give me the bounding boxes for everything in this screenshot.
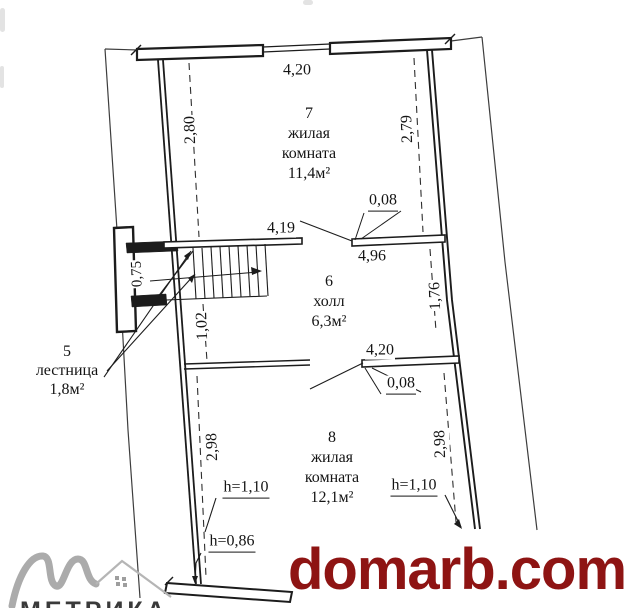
logo-house-window	[115, 576, 127, 587]
height-callout-right: h=1,10	[390, 478, 437, 497]
room-8-area: 12,1м²	[305, 488, 359, 508]
dim-wall-thickness-top: 0,08	[368, 193, 398, 212]
room-7-name: жилая	[282, 124, 336, 144]
dim-niche: 0,75	[130, 260, 147, 289]
watermark-text: domarb.com	[288, 541, 626, 599]
room-6-label: 6 холл 6,3м²	[312, 272, 347, 332]
room-6-number: 6	[312, 272, 347, 292]
room-5-area: 1,8м²	[36, 380, 98, 399]
dim-hall-right: 1,76	[427, 281, 445, 312]
height-callout-left: h=1,10	[222, 480, 269, 499]
door-leaf-room7	[300, 221, 352, 241]
room-7-number: 7	[282, 104, 336, 124]
room-6-area: 6,3м²	[312, 312, 347, 332]
room-8-label: 8 жилая комната 12,1м²	[305, 428, 359, 508]
dim-top-width: 4,20	[282, 63, 312, 80]
room-5-name: лестница	[36, 361, 98, 380]
dim-room8-left: 2,98	[204, 432, 222, 463]
bottom-wall	[165, 577, 292, 602]
room-7-area: 11,4м²	[282, 164, 336, 184]
floor-plan-page: 4,20 2,80 2,79 0,08 4,19 4,96 1,76 0,75 …	[0, 0, 630, 608]
dim-hall-width: 4,96	[357, 249, 387, 266]
logo-caption-text: МЕТРИКА	[20, 599, 169, 608]
top-window	[263, 44, 330, 52]
room-6-name: холл	[312, 292, 347, 312]
room-8-name: жилая	[305, 448, 359, 468]
partition-hall-room8	[184, 356, 459, 394]
top-wall	[131, 34, 455, 60]
logo-house-roof	[96, 561, 171, 597]
door-leaf-room8	[310, 363, 363, 389]
room-5-number: 5	[36, 342, 98, 361]
dim-stair-side: 1,02	[194, 311, 212, 342]
room-5-label: 5 лестница 1,8м²	[36, 342, 98, 399]
dim-room8-door-wall: 4,20	[365, 343, 395, 360]
room-8-name2: комната	[305, 468, 359, 488]
dim-room7-left: 2,80	[182, 115, 200, 146]
dim-room8-right: 2,98	[432, 429, 450, 460]
room-8-number: 8	[305, 428, 359, 448]
height-callout-bottom: h=0,86	[208, 534, 255, 553]
room-7-name2: комната	[282, 144, 336, 164]
dim-room7-right: 2,79	[399, 114, 417, 145]
room-7-label: 7 жилая комната 11,4м²	[282, 104, 336, 184]
dim-wall-thickness-mid: 0,08	[386, 376, 416, 395]
dim-stair-width: 4,19	[266, 221, 296, 238]
